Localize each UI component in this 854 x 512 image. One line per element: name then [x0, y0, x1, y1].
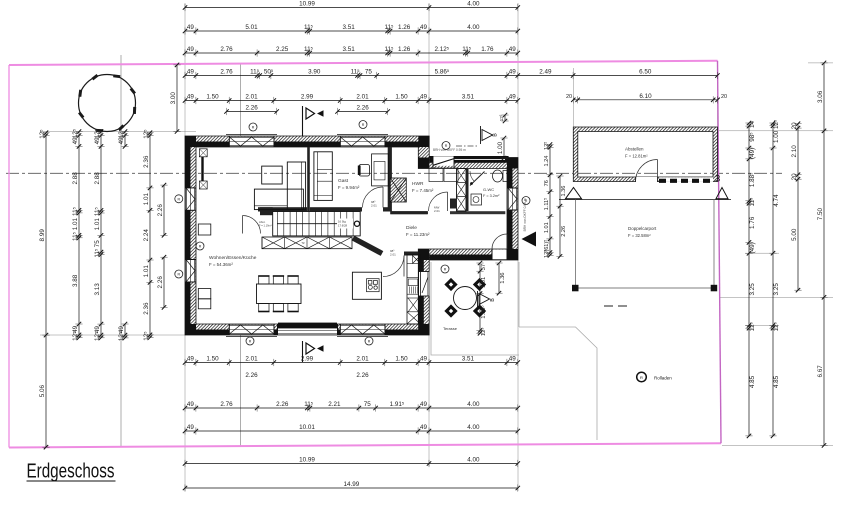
svg-text:2.76: 2.76 — [220, 69, 233, 76]
svg-text:49: 49 — [118, 137, 125, 145]
svg-text:Abst.: Abst. — [259, 220, 266, 224]
svg-text:2.24: 2.24 — [143, 229, 150, 242]
svg-text:R: R — [199, 245, 202, 249]
svg-text:2.01: 2.01 — [245, 356, 258, 363]
svg-text:49: 49 — [187, 424, 195, 431]
svg-text:1.76: 1.76 — [481, 46, 494, 53]
svg-text:10.99: 10.99 — [299, 1, 315, 8]
svg-text:1.01: 1.01 — [544, 222, 550, 233]
svg-text:Abstellen: Abstellen — [625, 147, 644, 152]
svg-text:Gast: Gast — [338, 178, 349, 184]
svg-text:R: R — [445, 144, 448, 148]
svg-text:2.36: 2.36 — [143, 155, 150, 168]
svg-text:Diele: Diele — [406, 225, 417, 231]
svg-text:3.25: 3.25 — [749, 283, 756, 296]
svg-text:1.01: 1.01 — [94, 218, 101, 231]
svg-text:10.99: 10.99 — [299, 457, 315, 464]
svg-text:2.01: 2.01 — [245, 94, 258, 101]
svg-text:49: 49 — [187, 356, 195, 363]
svg-text:3.25: 3.25 — [773, 283, 780, 296]
svg-text:37: 37 — [481, 264, 487, 270]
svg-text:2.01: 2.01 — [356, 356, 369, 363]
svg-text:5.01: 5.01 — [245, 24, 258, 31]
svg-text:3: 3 — [715, 174, 720, 185]
svg-text:2.88: 2.88 — [94, 172, 101, 185]
svg-text:14: 14 — [749, 121, 756, 129]
svg-text:1.50: 1.50 — [206, 356, 219, 363]
svg-text:75: 75 — [94, 240, 101, 248]
svg-text:F = 54.36m²: F = 54.36m² — [209, 262, 233, 267]
svg-text:(49): (49) — [749, 242, 756, 253]
svg-text:1.50: 1.50 — [206, 94, 219, 101]
svg-text:1.00: 1.00 — [497, 141, 504, 154]
svg-text:16 Stg: 16 Stg — [338, 220, 346, 224]
svg-text:2.26: 2.26 — [356, 372, 369, 379]
svg-text:2.26: 2.26 — [157, 276, 164, 289]
svg-text:2.01: 2.01 — [434, 209, 440, 213]
svg-text:49: 49 — [72, 137, 79, 145]
svg-text:75: 75 — [365, 69, 373, 76]
svg-text:7.50: 7.50 — [817, 207, 824, 220]
svg-text:1.50: 1.50 — [395, 94, 408, 101]
svg-text:3.88: 3.88 — [72, 274, 79, 287]
svg-text:3.51: 3.51 — [462, 94, 475, 101]
svg-text:3.51: 3.51 — [342, 24, 355, 31]
svg-text:R: R — [177, 273, 180, 277]
svg-text:R: R — [362, 123, 365, 127]
svg-text:20: 20 — [791, 173, 798, 181]
svg-text:1.915: 1.915 — [390, 400, 404, 408]
svg-text:F = 9.94m²: F = 9.94m² — [338, 185, 360, 190]
svg-text:2.21: 2.21 — [328, 401, 341, 408]
svg-text:BRH von GKFF 0.95 m: BRH von GKFF 0.95 m — [433, 148, 466, 152]
svg-text:4.00: 4.00 — [467, 457, 480, 464]
svg-text:49: 49 — [94, 137, 101, 145]
svg-text:2.76: 2.76 — [220, 401, 233, 408]
svg-text:Rolladen: Rolladen — [654, 376, 672, 381]
svg-text:G-WC: G-WC — [483, 187, 494, 192]
svg-text:2.26: 2.26 — [561, 226, 567, 237]
svg-text:4.85: 4.85 — [749, 375, 756, 388]
svg-text:3.13: 3.13 — [94, 283, 101, 296]
svg-text:R: R — [249, 340, 252, 344]
svg-text:F = 12.81m²: F = 12.81m² — [625, 154, 648, 159]
svg-text:8.99: 8.99 — [39, 229, 46, 242]
svg-text:20: 20 — [566, 94, 572, 100]
svg-text:10.01: 10.01 — [299, 424, 315, 431]
svg-text:1.665: 1.665 — [481, 305, 488, 318]
svg-text:5.06: 5.06 — [39, 384, 46, 397]
svg-text:2.88: 2.88 — [72, 172, 79, 185]
svg-text:17.6/28: 17.6/28 — [338, 224, 347, 228]
svg-text:(49): (49) — [749, 148, 756, 159]
svg-text:49: 49 — [187, 69, 195, 76]
svg-text:1.76: 1.76 — [749, 216, 756, 229]
svg-text:6.50: 6.50 — [639, 69, 652, 76]
svg-text:F = 32.58m²: F = 32.58m² — [628, 233, 651, 238]
svg-text:F = 1.19m²: F = 1.19m² — [259, 224, 272, 228]
svg-text:HWR: HWR — [412, 181, 424, 187]
svg-text:49: 49 — [187, 24, 195, 31]
svg-text:2.76: 2.76 — [220, 46, 233, 53]
svg-text:R: R — [640, 375, 643, 380]
svg-text:4.00: 4.00 — [467, 1, 480, 8]
svg-text:49: 49 — [420, 401, 428, 408]
svg-text:R: R — [368, 340, 371, 344]
svg-text:49: 49 — [420, 94, 428, 101]
svg-text:1.01: 1.01 — [481, 277, 487, 288]
svg-text:20: 20 — [791, 122, 798, 130]
svg-text:4.00: 4.00 — [467, 424, 480, 431]
svg-text:4.85: 4.85 — [773, 375, 780, 388]
svg-text:Doppelcarport: Doppelcarport — [628, 226, 657, 231]
svg-text:F = 11.23m²: F = 11.23m² — [406, 232, 430, 237]
svg-text:3.90: 3.90 — [308, 69, 321, 76]
svg-text:2.99: 2.99 — [301, 356, 314, 363]
svg-text:49: 49 — [187, 46, 195, 53]
svg-text:4.74: 4.74 — [773, 194, 780, 207]
svg-text:4.00: 4.00 — [467, 401, 480, 408]
svg-text:Wohnen/Essen/Küche: Wohnen/Essen/Küche — [209, 255, 257, 261]
svg-text:2.26: 2.26 — [245, 105, 258, 112]
svg-text:4.00: 4.00 — [467, 24, 480, 31]
svg-text:49: 49 — [420, 356, 428, 363]
svg-text:20: 20 — [721, 94, 727, 100]
svg-text:6.67: 6.67 — [817, 365, 824, 378]
svg-text:49: 49 — [420, 424, 428, 431]
svg-text:R: R — [444, 268, 447, 272]
svg-text:2.99: 2.99 — [301, 94, 314, 101]
svg-text:TZ: TZ — [301, 241, 305, 245]
svg-text:6.10: 6.10 — [639, 93, 652, 100]
svg-text:49: 49 — [509, 69, 517, 76]
svg-text:2.01: 2.01 — [390, 253, 396, 257]
svg-text:2.25: 2.25 — [276, 46, 289, 53]
svg-text:1.50: 1.50 — [395, 356, 408, 363]
svg-text:1.36: 1.36 — [561, 186, 567, 197]
svg-text:2.36: 2.36 — [143, 302, 150, 315]
svg-text:49: 49 — [509, 46, 517, 53]
svg-text:1.01: 1.01 — [143, 265, 150, 278]
svg-text:3.51: 3.51 — [342, 46, 355, 53]
svg-text:1.01: 1.01 — [72, 217, 79, 230]
svg-text:1.00: 1.00 — [773, 130, 780, 143]
svg-text:49: 49 — [187, 94, 195, 101]
svg-text:Erdgeschoss: Erdgeschoss — [27, 461, 115, 483]
svg-text:5.00: 5.00 — [791, 228, 798, 241]
svg-text:2.26: 2.26 — [276, 401, 289, 408]
svg-text:49: 49 — [420, 24, 428, 31]
svg-text:1.24: 1.24 — [544, 156, 550, 167]
svg-text:2.01: 2.01 — [356, 94, 369, 101]
svg-text:2.26: 2.26 — [157, 204, 164, 217]
svg-text:1.36: 1.36 — [500, 272, 506, 283]
svg-text:2.01: 2.01 — [371, 204, 377, 208]
svg-text:14.99: 14.99 — [344, 481, 360, 488]
svg-text:F = 3.2m²: F = 3.2m² — [483, 194, 500, 198]
svg-text:1.26: 1.26 — [398, 46, 411, 53]
svg-text:49: 49 — [509, 356, 517, 363]
svg-text:49: 49 — [509, 94, 517, 101]
svg-text:2.49: 2.49 — [539, 69, 552, 76]
svg-text:75: 75 — [364, 401, 372, 408]
svg-text:2.26: 2.26 — [356, 105, 369, 112]
svg-text:R: R — [252, 126, 255, 130]
svg-text:3.51: 3.51 — [462, 356, 475, 363]
svg-text:3.00: 3.00 — [170, 92, 177, 105]
svg-text:R: R — [177, 197, 180, 201]
svg-text:1.01: 1.01 — [143, 192, 150, 205]
svg-text:1.26: 1.26 — [398, 24, 411, 31]
svg-text:R: R — [525, 199, 528, 203]
svg-text:Terasse: Terasse — [443, 326, 458, 331]
svg-text:49: 49 — [187, 401, 195, 408]
svg-text:3.06: 3.06 — [817, 90, 824, 103]
svg-text:5.865: 5.865 — [435, 68, 449, 76]
svg-text:2.26: 2.26 — [245, 372, 258, 379]
svg-text:F = 7.45m²: F = 7.45m² — [412, 188, 434, 193]
svg-text:76: 76 — [544, 180, 550, 186]
svg-text:2.10: 2.10 — [791, 145, 798, 158]
